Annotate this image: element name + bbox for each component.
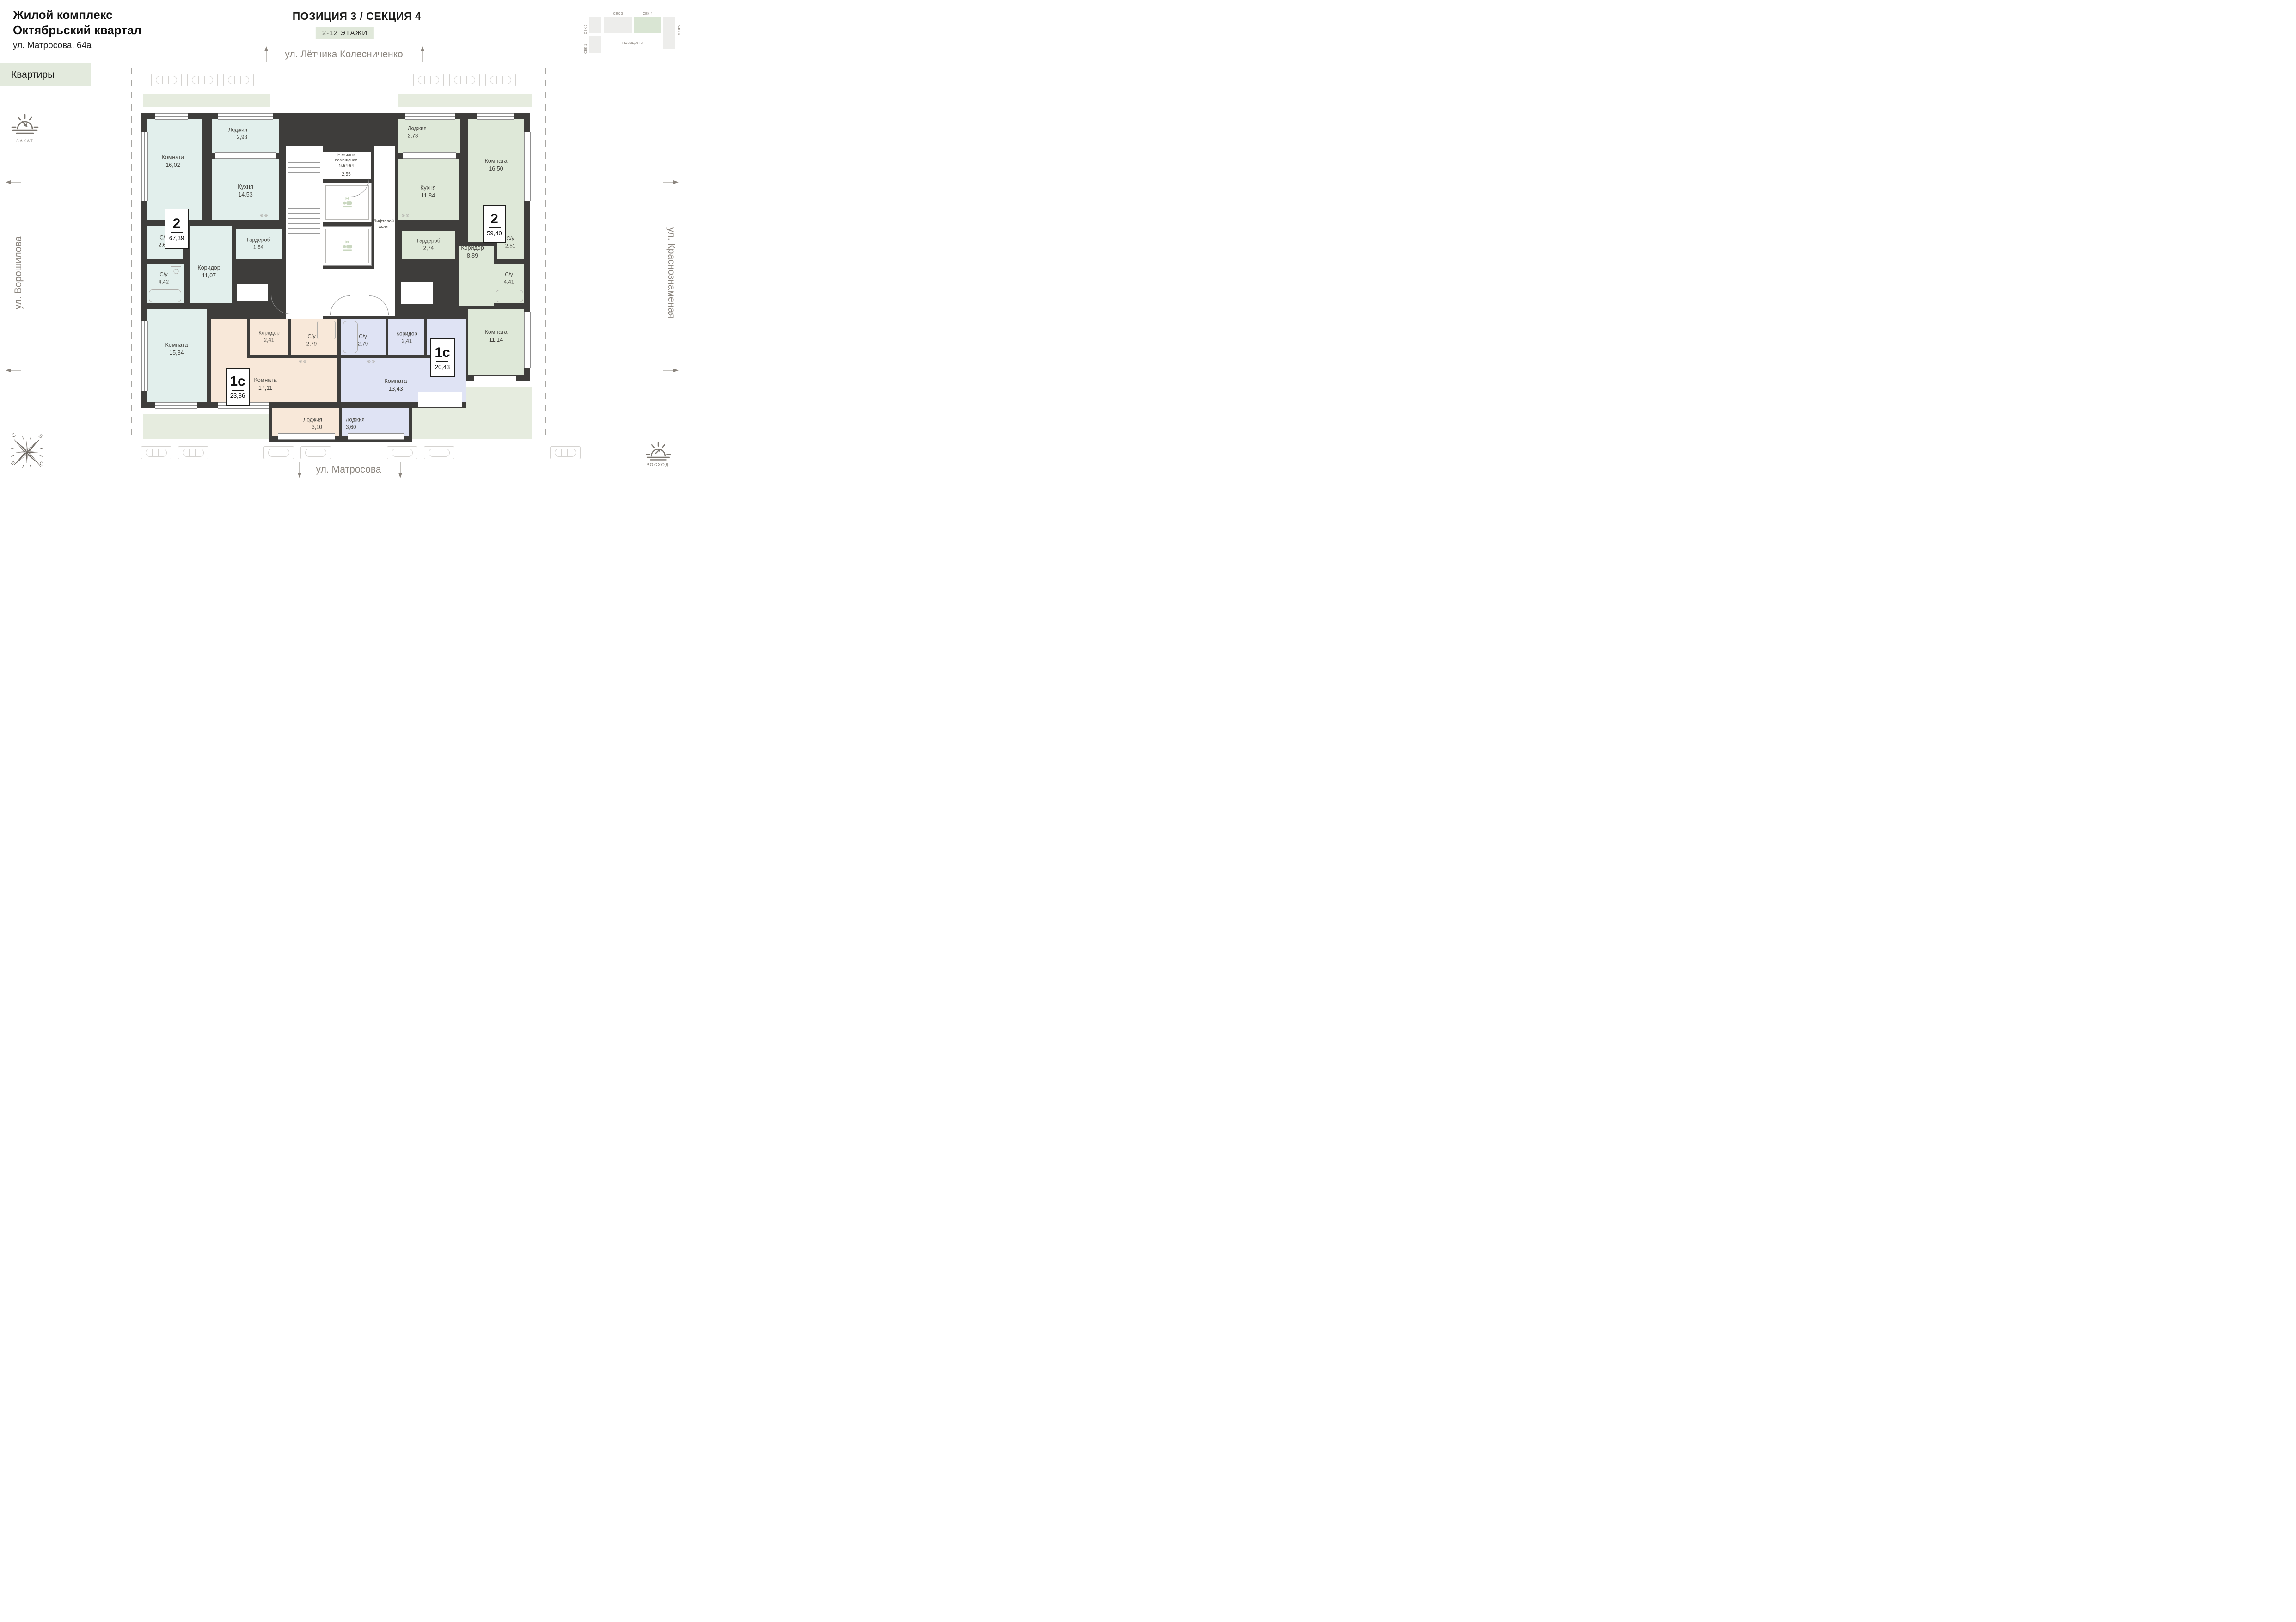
- window: [524, 312, 531, 368]
- floor-plan: Нежилое помещение №54-64 2,55 Лифтовой х…: [141, 113, 530, 442]
- sunset-icon: [11, 112, 39, 138]
- partition: [386, 319, 388, 358]
- room-label: Гардероб1,84: [247, 237, 270, 251]
- arrow-up-icon: [420, 46, 425, 63]
- apartment-badge-1c-right[interactable]: 1с20,43: [430, 338, 455, 377]
- partition: [424, 319, 427, 356]
- apartments-tab[interactable]: Квартиры: [0, 63, 91, 86]
- minimap-sec3-block[interactable]: [604, 17, 632, 33]
- room-label: С/у4,42: [159, 271, 169, 286]
- sunrise-label: ВОСХОД: [646, 462, 669, 467]
- room-label: Комната16,50: [485, 157, 508, 173]
- window: [278, 433, 335, 440]
- window: [155, 402, 197, 409]
- room-label: Комната16,02: [162, 154, 184, 169]
- apartment-badge-2-left[interactable]: 267,39: [165, 209, 189, 249]
- car-icon: [485, 74, 516, 86]
- car-icon: [550, 446, 581, 459]
- minimap-sec4-block-active[interactable]: [634, 17, 661, 33]
- street-top-label: ул. Лётчика Колесниченко: [285, 49, 403, 60]
- sunset-label: ЗАКАТ: [16, 139, 33, 143]
- complex-address: ул. Матросова, 64а: [13, 41, 92, 51]
- landscaping-strip: [398, 94, 532, 107]
- apartment-badge-2-right[interactable]: 259,40: [483, 205, 506, 243]
- room-label: Лоджия2,98: [228, 127, 247, 141]
- arrow-up-icon: [263, 46, 269, 63]
- window: [155, 113, 188, 120]
- bathtub-icon: [343, 321, 358, 353]
- room-label: Гардероб2,74: [417, 238, 441, 252]
- shower-icon: [317, 321, 336, 339]
- complex-title-line1: Жилой комплекс: [13, 7, 141, 23]
- landscaping-strip: [143, 94, 270, 107]
- car-icon: [151, 74, 182, 86]
- stove-icon: ⊗⊗: [401, 213, 410, 218]
- car-icon: [178, 446, 208, 459]
- arrow-left-icon: [6, 179, 22, 185]
- room-label: С/у2,79: [358, 333, 368, 348]
- room-label: Лоджия3,60: [346, 417, 365, 431]
- room-label: Лоджия2,73: [408, 125, 427, 140]
- room-label: Комната11,14: [485, 328, 508, 344]
- partition: [247, 319, 250, 356]
- room-label: Коридор11,07: [197, 264, 220, 280]
- minimap-sec1-label: СЕК 1: [583, 38, 588, 54]
- car-icon: [300, 446, 331, 459]
- window: [141, 132, 148, 201]
- niche: [401, 282, 433, 304]
- window: [403, 152, 456, 159]
- stove-icon: ⊗⊗: [260, 213, 269, 218]
- floors-badge: 2-12 ЭТАЖИ: [316, 27, 374, 39]
- partition: [288, 319, 291, 358]
- site-boundary-line: [131, 68, 132, 440]
- room-label: Кухня14,53: [238, 183, 253, 199]
- window: [405, 113, 455, 120]
- room-label: Лоджия3,10: [303, 417, 322, 431]
- car-icon: [387, 446, 417, 459]
- nonresidential-label: Нежилое помещение №54-64: [335, 153, 357, 168]
- niche: [237, 284, 268, 301]
- car-icon: [141, 446, 171, 459]
- car-icon: [187, 74, 218, 86]
- minimap-sec3-label: СЕК 3: [613, 12, 623, 16]
- minimap-sec5-label: СЕК 5: [677, 25, 681, 41]
- arrow-right-icon: [662, 368, 679, 373]
- apartment-badge-1c-left[interactable]: 1с23,86: [226, 368, 250, 405]
- arrow-right-icon: [662, 179, 679, 185]
- complex-title-line2: Октябрьский квартал: [13, 23, 141, 38]
- car-icon: [223, 74, 254, 86]
- arrow-left-icon: [6, 368, 22, 373]
- elevator: [323, 226, 372, 266]
- car-icon: [263, 446, 294, 459]
- room-bedroom-left-1[interactable]: [147, 119, 202, 220]
- room-label: С/у2,51: [505, 235, 515, 250]
- minimap-sec2-label: СЕК 2: [583, 18, 588, 34]
- window: [215, 152, 276, 159]
- lift-hall-label: Лифтовой холл: [373, 219, 394, 230]
- window: [218, 113, 273, 120]
- apartments-tab-label: Квартиры: [0, 69, 55, 80]
- stove-icon: ⊗⊗: [367, 359, 376, 364]
- partition: [341, 355, 430, 358]
- minimap-sec1-block[interactable]: [589, 36, 601, 53]
- partition: [247, 355, 337, 358]
- arrow-down-icon: [297, 461, 302, 478]
- minimap-sec2-block[interactable]: [589, 17, 601, 33]
- washing-machine-icon: [171, 266, 181, 276]
- street-left-label: ул. Ворошилова: [13, 236, 24, 309]
- window: [477, 113, 514, 120]
- car-icon: [449, 74, 480, 86]
- nonresidential-area: 2,55: [342, 172, 350, 178]
- window: [474, 376, 516, 382]
- window: [141, 321, 148, 391]
- window: [418, 401, 462, 407]
- room-label: Коридор2,41: [396, 331, 417, 345]
- room-label: Коридор8,89: [461, 244, 484, 260]
- minimap-sec4-label: СЕК 4: [643, 12, 652, 16]
- window: [524, 132, 531, 201]
- arrow-down-icon: [398, 461, 403, 478]
- entrance-porch: [418, 392, 462, 402]
- bathtub-icon: [496, 290, 523, 302]
- minimap-sec5-block[interactable]: [663, 17, 675, 49]
- complex-title: Жилой комплекс Октябрьский квартал: [13, 7, 141, 38]
- sunrise-icon: [645, 440, 671, 465]
- site-boundary-line: [545, 68, 546, 440]
- room-label: Комната13,43: [385, 377, 407, 393]
- car-icon: [424, 446, 454, 459]
- room-label: Комната15,34: [165, 341, 188, 357]
- position-section-title: ПОЗИЦИЯ 3 / СЕКЦИЯ 4: [293, 10, 422, 23]
- car-icon: [413, 74, 444, 86]
- floor-plan-page: Жилой комплекс Октябрьский квартал ул. М…: [0, 0, 689, 486]
- street-right-label: ул. Краснознаменая: [666, 227, 677, 319]
- room-label: Комната17,11: [254, 376, 277, 392]
- stairs: [288, 162, 320, 247]
- minimap-position-label: ПОЗИЦИЯ 3: [622, 41, 643, 45]
- bathtub-icon: [149, 289, 181, 302]
- stove-icon: ⊗⊗: [299, 359, 307, 364]
- street-bottom-label: ул. Матросова: [316, 464, 381, 475]
- room-label: Коридор2,41: [258, 330, 279, 344]
- room-label: Кухня11,84: [420, 184, 435, 200]
- room-label: С/у2,79: [306, 333, 317, 348]
- room-label: С/у4,41: [504, 271, 514, 286]
- window: [348, 433, 404, 440]
